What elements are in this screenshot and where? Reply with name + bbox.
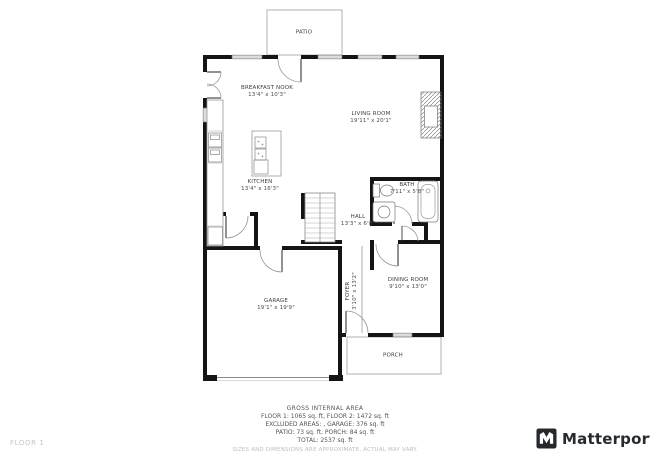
bath-sink	[373, 202, 395, 222]
kitchen-counter	[207, 100, 223, 246]
room-name: BREAKFAST NOOK	[241, 85, 293, 92]
closet-door	[402, 226, 418, 241]
room-dims: 7'11" x 5'8"	[390, 189, 424, 196]
kitchen-island	[252, 131, 281, 176]
summary-title: GROSS INTERNAL AREA	[232, 405, 417, 413]
room-dims: 19'11" x 20'1"	[350, 118, 391, 125]
window	[318, 55, 342, 59]
kitchen-fixtures	[207, 100, 281, 246]
room-label-dining-room: DINING ROOM 9'10" x 13'0"	[388, 277, 429, 291]
room-label-living-room: LIVING ROOM 19'11" x 20'1"	[350, 111, 391, 125]
room-name: LIVING ROOM	[350, 111, 391, 118]
room-label-foyer: FOYER 3'10" x 13'2"	[345, 272, 359, 310]
room-label-porch: PORCH	[383, 353, 403, 360]
summary-line-excluded: EXCLUDED AREAS: , GARAGE: 376 sq. ft	[232, 421, 417, 429]
window	[358, 55, 382, 59]
garage-entry-door	[260, 250, 282, 272]
stairs	[305, 193, 335, 242]
floorplan-drawing	[0, 0, 650, 460]
room-label-kitchen: KITCHEN 13'4" x 16'3"	[241, 179, 279, 193]
room-name: HALL	[341, 214, 375, 221]
room-name: PATIO	[296, 30, 312, 37]
fireplace	[421, 92, 441, 138]
matterport-logo-text: Matterport	[562, 430, 650, 448]
bath-door	[394, 206, 412, 224]
room-dims: 13'3" x 6'8"	[341, 221, 375, 228]
room-name: BATH	[390, 182, 424, 189]
room-name: GARAGE	[257, 298, 295, 305]
mudroom-door	[226, 216, 248, 238]
room-name: FOYER	[345, 272, 352, 310]
room-label-breakfast-nook: BREAKFAST NOOK 13'4" x 10'3"	[241, 85, 293, 99]
window	[393, 333, 412, 337]
garage-door	[217, 378, 329, 381]
window	[396, 55, 419, 59]
dining-door	[376, 244, 398, 266]
room-dims: 9'10" x 13'0"	[388, 284, 429, 291]
room-dims: 13'4" x 16'3"	[241, 186, 279, 193]
room-dims: 13'4" x 10'3"	[241, 92, 293, 99]
area-summary: GROSS INTERNAL AREA FLOOR 1: 1065 sq. ft…	[232, 405, 417, 454]
room-dims: 3'10" x 13'2"	[352, 272, 359, 310]
window	[232, 55, 262, 59]
patio-door	[278, 59, 301, 82]
room-label-bath: BATH 7'11" x 5'8"	[390, 182, 424, 196]
french-doors	[207, 72, 221, 98]
room-name: KITCHEN	[241, 179, 279, 186]
room-name: PORCH	[383, 353, 403, 360]
matterport-logo-icon	[536, 428, 557, 449]
summary-disclaimer: SIZES AND DIMENSIONS ARE APPROXIMATE, AC…	[232, 446, 417, 454]
room-label-garage: GARAGE 19'1" x 19'9"	[257, 298, 295, 312]
room-label-hall: HALL 13'3" x 6'8"	[341, 214, 375, 228]
summary-line-patio-porch: PATIO: 73 sq. ft, PORCH: 84 sq. ft	[232, 429, 417, 437]
room-dims: 19'1" x 19'9"	[257, 305, 295, 312]
floor-tag: FLOOR 1	[10, 439, 44, 447]
floorplan-page: PATIO BREAKFAST NOOK 13'4" x 10'3" LIVIN…	[0, 0, 650, 460]
summary-line-floors: FLOOR 1: 1065 sq. ft, FLOOR 2: 1472 sq. …	[232, 413, 417, 421]
front-door	[346, 311, 368, 333]
window	[203, 108, 207, 122]
room-label-patio: PATIO	[296, 30, 312, 37]
summary-line-total: TOTAL: 2537 sq. ft	[232, 437, 417, 445]
room-name: DINING ROOM	[388, 277, 429, 284]
matterport-logo: Matterport	[536, 428, 650, 449]
